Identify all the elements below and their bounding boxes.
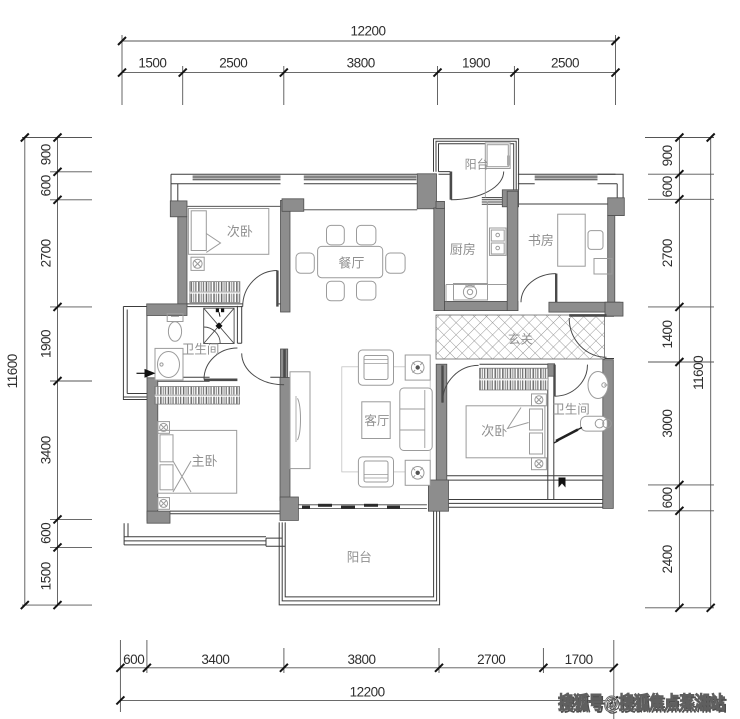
- svg-text:600: 600: [39, 523, 54, 544]
- svg-text:2700: 2700: [477, 652, 505, 667]
- svg-text:阳台: 阳台: [465, 157, 489, 172]
- svg-text:1500: 1500: [138, 55, 166, 70]
- svg-text:2700: 2700: [39, 239, 54, 267]
- svg-text:书房: 书房: [528, 233, 554, 248]
- svg-text:1900: 1900: [462, 55, 490, 70]
- svg-text:搜狐号@搜狐焦点蒸湘站: 搜狐号@搜狐焦点蒸湘站: [558, 692, 725, 713]
- svg-text:1700: 1700: [565, 652, 593, 667]
- svg-text:2500: 2500: [219, 55, 247, 70]
- svg-text:1900: 1900: [39, 330, 54, 358]
- svg-text:1500: 1500: [39, 562, 54, 590]
- svg-text:11600: 11600: [691, 356, 706, 390]
- svg-text:厨房: 厨房: [450, 242, 476, 257]
- svg-text:2400: 2400: [660, 545, 675, 573]
- svg-text:11600: 11600: [5, 354, 20, 388]
- svg-text:600: 600: [123, 652, 144, 667]
- svg-text:600: 600: [660, 487, 675, 508]
- svg-text:卫生间: 卫生间: [182, 343, 220, 357]
- svg-text:主卧: 主卧: [191, 454, 217, 469]
- svg-text:玄关: 玄关: [508, 332, 533, 347]
- svg-text:次卧: 次卧: [227, 224, 253, 239]
- svg-text:2500: 2500: [551, 55, 579, 70]
- svg-text:1400: 1400: [660, 320, 675, 348]
- svg-text:3800: 3800: [347, 652, 375, 667]
- svg-text:12200: 12200: [350, 684, 385, 699]
- svg-text:3800: 3800: [347, 55, 375, 70]
- svg-text:阳台: 阳台: [347, 550, 372, 565]
- svg-text:卫生间: 卫生间: [552, 403, 590, 417]
- svg-text:600: 600: [39, 175, 54, 196]
- svg-text:2700: 2700: [660, 239, 675, 267]
- svg-text:3400: 3400: [201, 652, 229, 667]
- svg-text:900: 900: [660, 145, 675, 166]
- svg-text:3400: 3400: [39, 436, 54, 464]
- svg-text:3000: 3000: [660, 410, 675, 438]
- svg-text:12200: 12200: [350, 24, 385, 39]
- svg-text:餐厅: 餐厅: [338, 256, 364, 271]
- svg-text:900: 900: [39, 144, 54, 165]
- svg-text:客厅: 客厅: [364, 413, 389, 428]
- svg-text:次卧: 次卧: [481, 424, 507, 439]
- svg-text:600: 600: [660, 176, 675, 197]
